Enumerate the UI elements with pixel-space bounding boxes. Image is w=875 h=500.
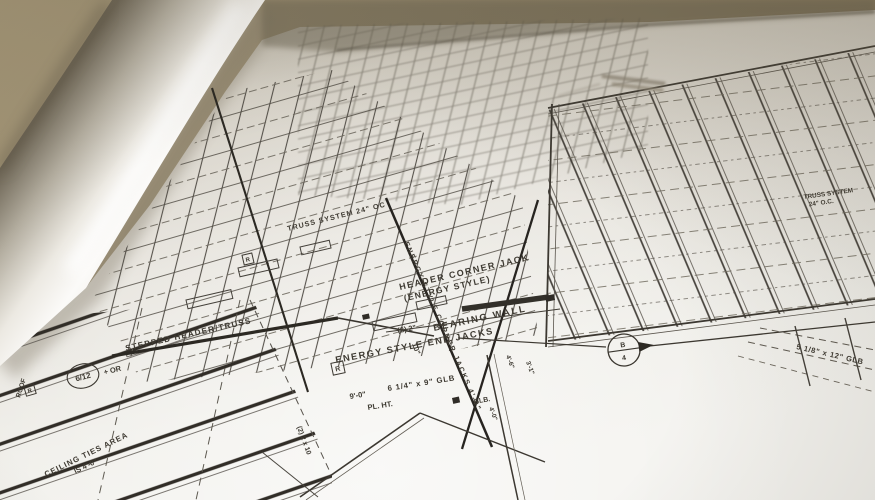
blueprint-photo: B 4 R: [0, 0, 875, 500]
section-marker-top-label: B: [620, 342, 626, 350]
blueprint-scene-svg: B 4 R: [0, 0, 875, 500]
